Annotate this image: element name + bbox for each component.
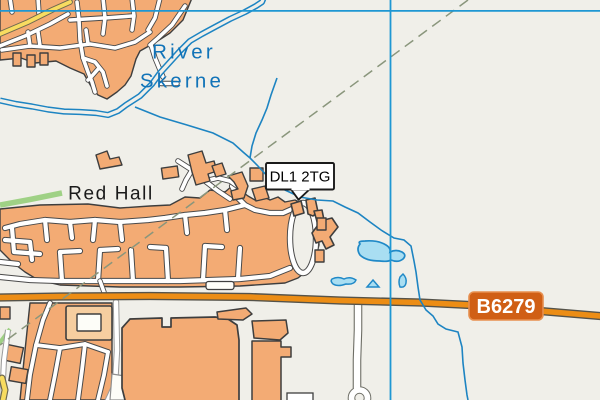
svg-text:Red Hall: Red Hall bbox=[68, 184, 154, 205]
svg-text:River: River bbox=[152, 41, 216, 64]
svg-text:DL1 2TG: DL1 2TG bbox=[270, 169, 331, 186]
svg-text:B6279: B6279 bbox=[477, 296, 536, 318]
svg-text:Skerne: Skerne bbox=[140, 70, 224, 93]
